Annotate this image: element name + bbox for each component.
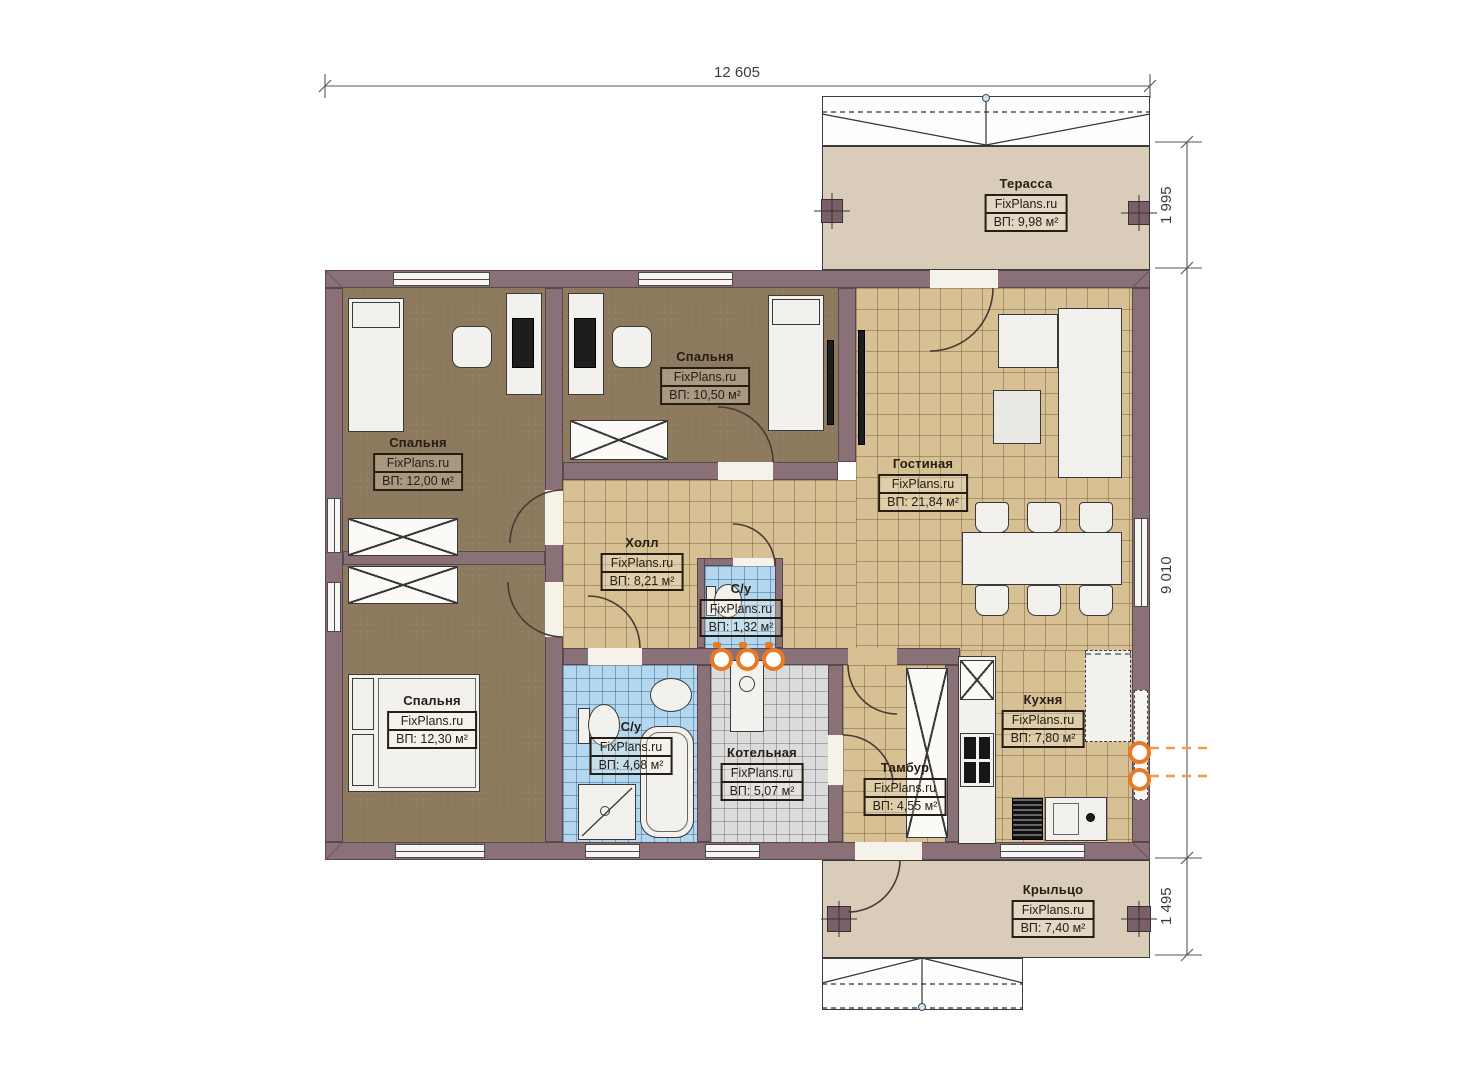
room-brand: FixPlans.ru	[1002, 710, 1085, 730]
pillow	[352, 734, 374, 786]
dining-chair	[975, 502, 1009, 533]
window	[327, 582, 341, 632]
porch-deck	[822, 860, 1150, 958]
door-opening-bathroom	[588, 648, 642, 665]
window	[585, 844, 640, 858]
room-title: Гостиная	[878, 456, 968, 471]
room-brand: FixPlans.ru	[601, 553, 684, 573]
dining-chair	[1079, 585, 1113, 616]
utility-point-icon	[736, 648, 759, 671]
room-area: ВП: 12,30 м²	[387, 731, 477, 749]
pillow	[772, 299, 820, 325]
faucet	[1086, 813, 1095, 822]
room-title: Котельная	[721, 745, 804, 760]
desk-chair	[452, 326, 492, 368]
room-brand: FixPlans.ru	[878, 474, 968, 494]
room-area: ВП: 9,98 м²	[985, 214, 1068, 232]
kitchen-wall-niche	[1134, 690, 1148, 745]
coffee-table	[993, 390, 1041, 444]
wall-bathroom-boiler	[697, 665, 711, 842]
room-area: ВП: 4,55 м²	[864, 798, 947, 816]
window	[705, 844, 760, 858]
boiler-flue	[739, 676, 755, 692]
window	[327, 498, 341, 553]
room-brand: FixPlans.ru	[864, 778, 947, 798]
pillow	[352, 678, 374, 730]
room-brand: FixPlans.ru	[590, 737, 673, 757]
room-label-bedroom-bottom-left: Спальня FixPlans.ru ВП: 12,30 м²	[387, 693, 477, 749]
door-opening-terrace	[930, 270, 998, 288]
door-opening-bedroom2	[718, 462, 773, 480]
room-label-wc-small: С/у FixPlans.ru ВП: 1,32 м²	[700, 581, 783, 637]
wardrobe	[348, 566, 458, 604]
door-opening-entrance	[855, 842, 922, 860]
utility-point-icon	[762, 648, 785, 671]
window	[638, 272, 733, 286]
room-label-terrace: Терасса FixPlans.ru ВП: 9,98 м²	[985, 176, 1068, 232]
dining-chair	[975, 585, 1009, 616]
floor-plan-canvas: Терасса FixPlans.ru ВП: 9,98 м² Спальня …	[0, 0, 1473, 1080]
utility-leader-lines	[1150, 748, 1213, 776]
room-brand: FixPlans.ru	[721, 763, 804, 783]
tv	[827, 340, 834, 425]
sofa-chaise	[998, 314, 1058, 368]
pillow	[352, 302, 400, 328]
room-brand: FixPlans.ru	[700, 599, 783, 619]
dimension-main-height: 9 010	[1158, 535, 1175, 615]
dining-chair	[1079, 502, 1113, 533]
sink	[650, 678, 692, 712]
room-title: Тамбур	[864, 760, 947, 775]
door-opening-bedroom1	[545, 490, 563, 545]
door-opening-bedroom3	[545, 582, 563, 637]
wall-bedroom2-hall	[563, 462, 838, 480]
room-area: ВП: 7,80 м²	[1002, 730, 1085, 748]
room-label-bathroom: С/у FixPlans.ru ВП: 4,68 м²	[590, 719, 673, 775]
window	[1000, 844, 1085, 858]
room-area: ВП: 21,84 м²	[878, 494, 968, 512]
shower-drain	[600, 806, 610, 816]
stove-burners	[960, 733, 994, 787]
room-area: ВП: 5,07 м²	[721, 783, 804, 801]
dining-chair	[1027, 502, 1061, 533]
room-title: Холл	[601, 535, 684, 550]
sofa	[1058, 308, 1122, 478]
fridge	[1085, 650, 1131, 742]
utility-point-icon	[1128, 741, 1151, 764]
room-title: Кухня	[1002, 692, 1085, 707]
room-title: Спальня	[373, 435, 463, 450]
computer	[512, 318, 534, 368]
room-title: С/у	[700, 581, 783, 596]
dimension-top-width: 12 605	[687, 64, 787, 81]
door-opening-wc-small	[733, 558, 775, 566]
room-brand: FixPlans.ru	[373, 453, 463, 473]
room-label-living-room: Гостиная FixPlans.ru ВП: 21,84 м²	[878, 456, 968, 512]
room-area: ВП: 8,21 м²	[601, 573, 684, 591]
room-title: Терасса	[985, 176, 1068, 191]
room-area: ВП: 4,68 м²	[590, 757, 673, 775]
dining-table	[962, 532, 1122, 585]
wall-bedrooms-hall	[545, 288, 563, 842]
door-opening-vestibule	[848, 648, 897, 665]
wall-bedroom2-living	[838, 288, 856, 462]
desk-chair	[612, 326, 652, 368]
porch-column	[827, 906, 851, 932]
room-label-hall: Холл FixPlans.ru ВП: 8,21 м²	[601, 535, 684, 591]
kitchen-appliance	[1012, 798, 1043, 840]
wardrobe	[348, 518, 458, 556]
room-label-bedroom-top-middle: Спальня FixPlans.ru ВП: 10,50 м²	[660, 349, 750, 405]
room-title: Спальня	[660, 349, 750, 364]
wardrobe	[570, 420, 668, 460]
room-title: Крыльцо	[1012, 882, 1095, 897]
dimension-porch-depth: 1 495	[1158, 866, 1175, 946]
room-label-porch: Крыльцо FixPlans.ru ВП: 7,40 м²	[1012, 882, 1095, 938]
room-label-vestibule: Тамбур FixPlans.ru ВП: 4,55 м²	[864, 760, 947, 816]
porch-stairs	[822, 958, 1023, 1010]
room-brand: FixPlans.ru	[985, 194, 1068, 214]
sink-basin	[1053, 803, 1079, 835]
room-brand: FixPlans.ru	[387, 711, 477, 731]
room-label-boiler-room: Котельная FixPlans.ru ВП: 5,07 м²	[721, 745, 804, 801]
dining-chair	[1027, 585, 1061, 616]
window	[1134, 518, 1148, 607]
terrace-stairs	[822, 96, 1150, 146]
room-label-bedroom-top-left: Спальня FixPlans.ru ВП: 12,00 м²	[373, 435, 463, 491]
tv	[858, 330, 865, 445]
room-title: Спальня	[387, 693, 477, 708]
room-area: ВП: 10,50 м²	[660, 387, 750, 405]
room-label-kitchen: Кухня FixPlans.ru ВП: 7,80 м²	[1002, 692, 1085, 748]
room-area: ВП: 1,32 м²	[700, 619, 783, 637]
terrace-column	[821, 199, 843, 223]
room-area: ВП: 7,40 м²	[1012, 920, 1095, 938]
window	[395, 844, 485, 858]
room-brand: FixPlans.ru	[1012, 900, 1095, 920]
utility-point-icon	[1128, 768, 1151, 791]
window	[393, 272, 490, 286]
door-opening-boiler	[828, 735, 843, 785]
room-title: С/у	[590, 719, 673, 734]
computer	[574, 318, 596, 368]
utility-point-icon	[710, 648, 733, 671]
room-brand: FixPlans.ru	[660, 367, 750, 387]
dimension-terrace-depth: 1 995	[1158, 165, 1175, 245]
terrace-column	[1128, 201, 1150, 225]
porch-column	[1127, 906, 1151, 932]
kitchen-sink-unit	[960, 660, 994, 700]
exterior-wall-left	[325, 288, 343, 842]
room-area: ВП: 12,00 м²	[373, 473, 463, 491]
